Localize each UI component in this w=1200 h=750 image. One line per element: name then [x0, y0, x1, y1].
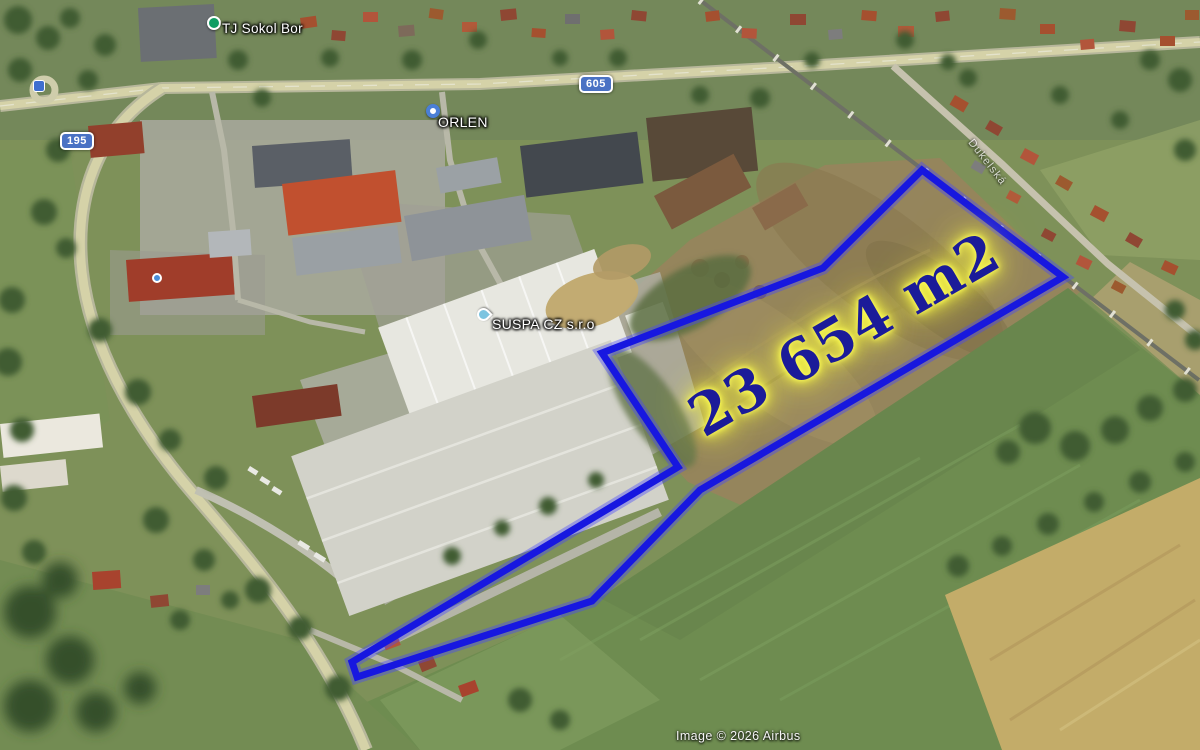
poi-label-orlen: ORLEN — [438, 114, 488, 130]
poi-green-dot-icon — [207, 16, 221, 30]
satellite-imagery — [0, 0, 1200, 750]
poi-blue-dot-icon — [152, 273, 162, 283]
poi-label-tj-sokol-bor: TJ Sokol Bor — [222, 21, 303, 36]
map-canvas[interactable]: TJ Sokol Bor ORLEN SUSPA CZ s.r.o 195 60… — [0, 0, 1200, 750]
poi-label-suspa: SUSPA CZ s.r.o — [492, 316, 595, 332]
imagery-copyright: Image © 2026 Airbus — [676, 729, 801, 743]
road-shield-605: 605 — [579, 75, 613, 93]
road-shield-195: 195 — [60, 132, 94, 150]
poi-transit-icon — [33, 80, 45, 92]
